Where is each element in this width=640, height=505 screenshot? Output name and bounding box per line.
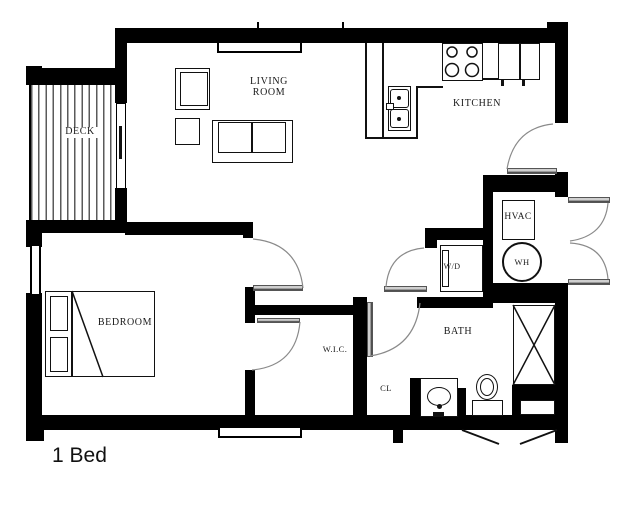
entry-door-arc [507,124,553,169]
wall-top [115,28,568,43]
wall-bottom-left-corner [26,415,44,441]
equipment-label-wd: W/D [444,262,461,273]
wall-toilet-stub [458,388,466,417]
equipment-label-wh: WH [515,257,530,268]
wall-deck-top [26,68,117,85]
room-label-living: LIVING ROOM [245,77,293,98]
wall-hvac-north [483,175,557,192]
wall-living-west-upper [115,43,127,103]
pillow-top [50,296,68,331]
wall-deck-bottom [26,220,125,233]
wall-tick-left [257,22,259,28]
wall-shower-south [512,385,555,400]
counter-edge-east [483,78,498,80]
bath-door-arc [370,303,420,356]
hvac-closet-door-bottom [568,279,610,285]
hvac-door-arc-bottom [570,243,608,279]
washer-dryer-door [384,286,427,292]
wall-right-upper [555,28,568,123]
refrigerator [498,43,520,80]
bedroom-door-arc [253,239,303,288]
deck-boards [29,85,117,220]
counter-edge-south [365,137,418,139]
room-label-kitchen: KITCHEN [453,99,501,110]
sofa-cushion-divider [251,122,253,153]
hvac-closet-door-top [568,197,610,203]
equipment-label-hvac: HVAC [504,212,531,223]
wall-bath-north-west [417,297,493,308]
room-label-closet: CL [380,383,392,394]
floor-plan: DECK LIVING ROOM KITCHEN BEDROOM W.I.C. … [0,0,640,505]
bath-door [367,302,373,357]
wall-entry-stub [393,428,403,443]
hvac-door-arc-top [570,203,608,241]
toilet-tank [472,400,503,416]
range [442,43,483,81]
media-console [217,43,302,53]
wall-living-south [125,222,245,235]
wall-tick-right [342,22,344,28]
armchair-cushion [180,72,208,106]
wall-hvac-south [483,283,568,303]
vanity-faucet-base [433,412,444,416]
toilet-bowl-inner [480,378,494,396]
wall-wic-north [245,305,367,315]
shower [513,305,555,385]
room-label-bedroom: BEDROOM [98,318,152,329]
bedroom-south-window [218,428,302,438]
room-label-wic: W.I.C. [323,344,348,355]
shower-niche [520,400,555,415]
wall-hvac-west [483,175,493,295]
room-label-deck: DECK [62,127,98,138]
wic-door-arc [252,322,300,370]
bedroom-window [30,246,41,294]
entry-door [507,168,557,174]
vanity-faucet-dot [437,404,442,409]
counter-edge-west-outer [365,43,367,139]
washer-dryer-door-arc [386,248,424,287]
corridor-door-swing-left [462,430,499,444]
wall-vanity-stub [410,378,420,417]
counter-edge-inner-v [416,86,418,139]
corridor-door-swing-right [520,430,557,444]
plan-title: 1 Bed [52,444,107,468]
cabinet-handle-right [522,80,525,86]
wall-wic-west-lower [245,370,255,417]
counter-edge-west-inner [382,43,384,139]
wall-left-b [26,293,42,415]
sink-faucet [386,103,394,110]
cabinet-handle-left [501,80,504,86]
wic-door [257,318,300,323]
wall-shower-south-leg [512,400,520,415]
wall-living-south-cap [243,222,253,238]
bed-headboard-line [71,291,73,377]
pillow-bottom [50,337,68,372]
pantry-cabinet [520,43,540,80]
deck-slider-panel [119,126,122,159]
side-table [175,118,200,145]
wall-left-a [26,233,42,247]
bedroom-door [253,285,303,291]
room-label-bath: BATH [444,327,473,338]
wall-wic-east [353,297,367,415]
sink-bowl-bottom [390,109,409,128]
counter-edge-inner-h [416,86,443,88]
